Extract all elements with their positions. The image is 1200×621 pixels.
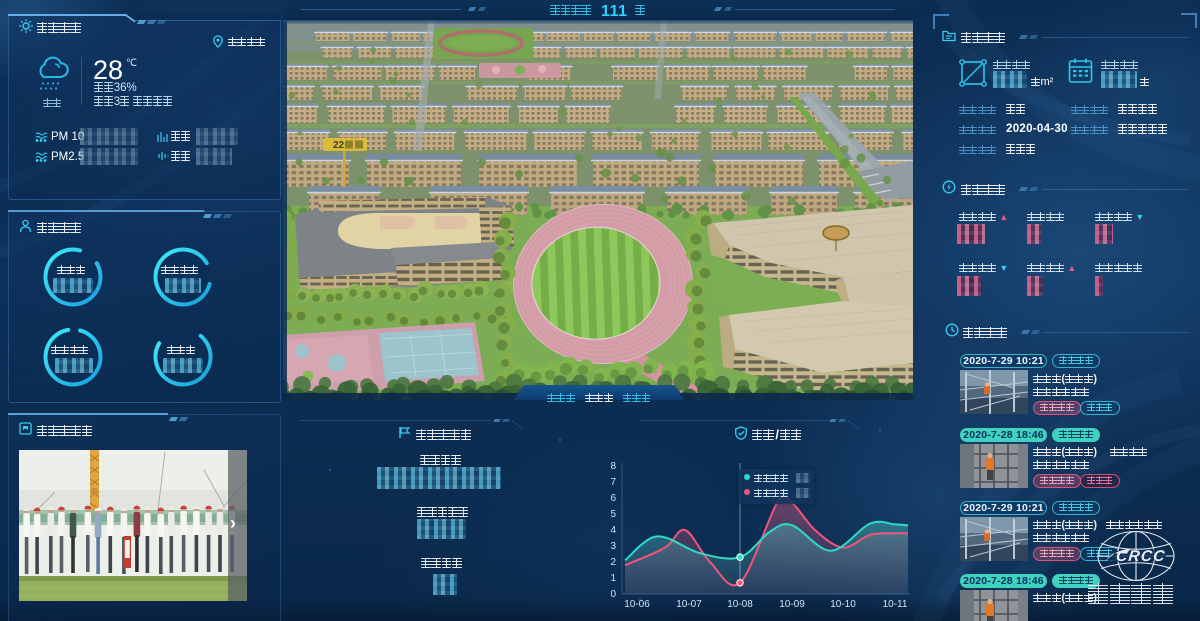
svg-text:2: 2 [610,557,616,568]
svg-text:10-07: 10-07 [676,599,702,610]
svg-text:5: 5 [610,509,616,520]
svg-text:10-09: 10-09 [779,599,805,610]
svg-text:3: 3 [610,541,616,552]
svg-text:CRCC: CRCC [1115,548,1166,565]
svg-text:1: 1 [610,573,616,584]
svg-text:10-11: 10-11 [883,599,908,610]
svg-text:4: 4 [610,525,616,536]
svg-text:7: 7 [610,477,616,488]
svg-text:10-10: 10-10 [830,599,856,610]
svg-text:10-08: 10-08 [727,599,753,610]
svg-text:10-06: 10-06 [624,599,650,610]
svg-text:0: 0 [610,589,616,600]
svg-text:6: 6 [610,493,616,504]
svg-text:8: 8 [610,461,616,472]
